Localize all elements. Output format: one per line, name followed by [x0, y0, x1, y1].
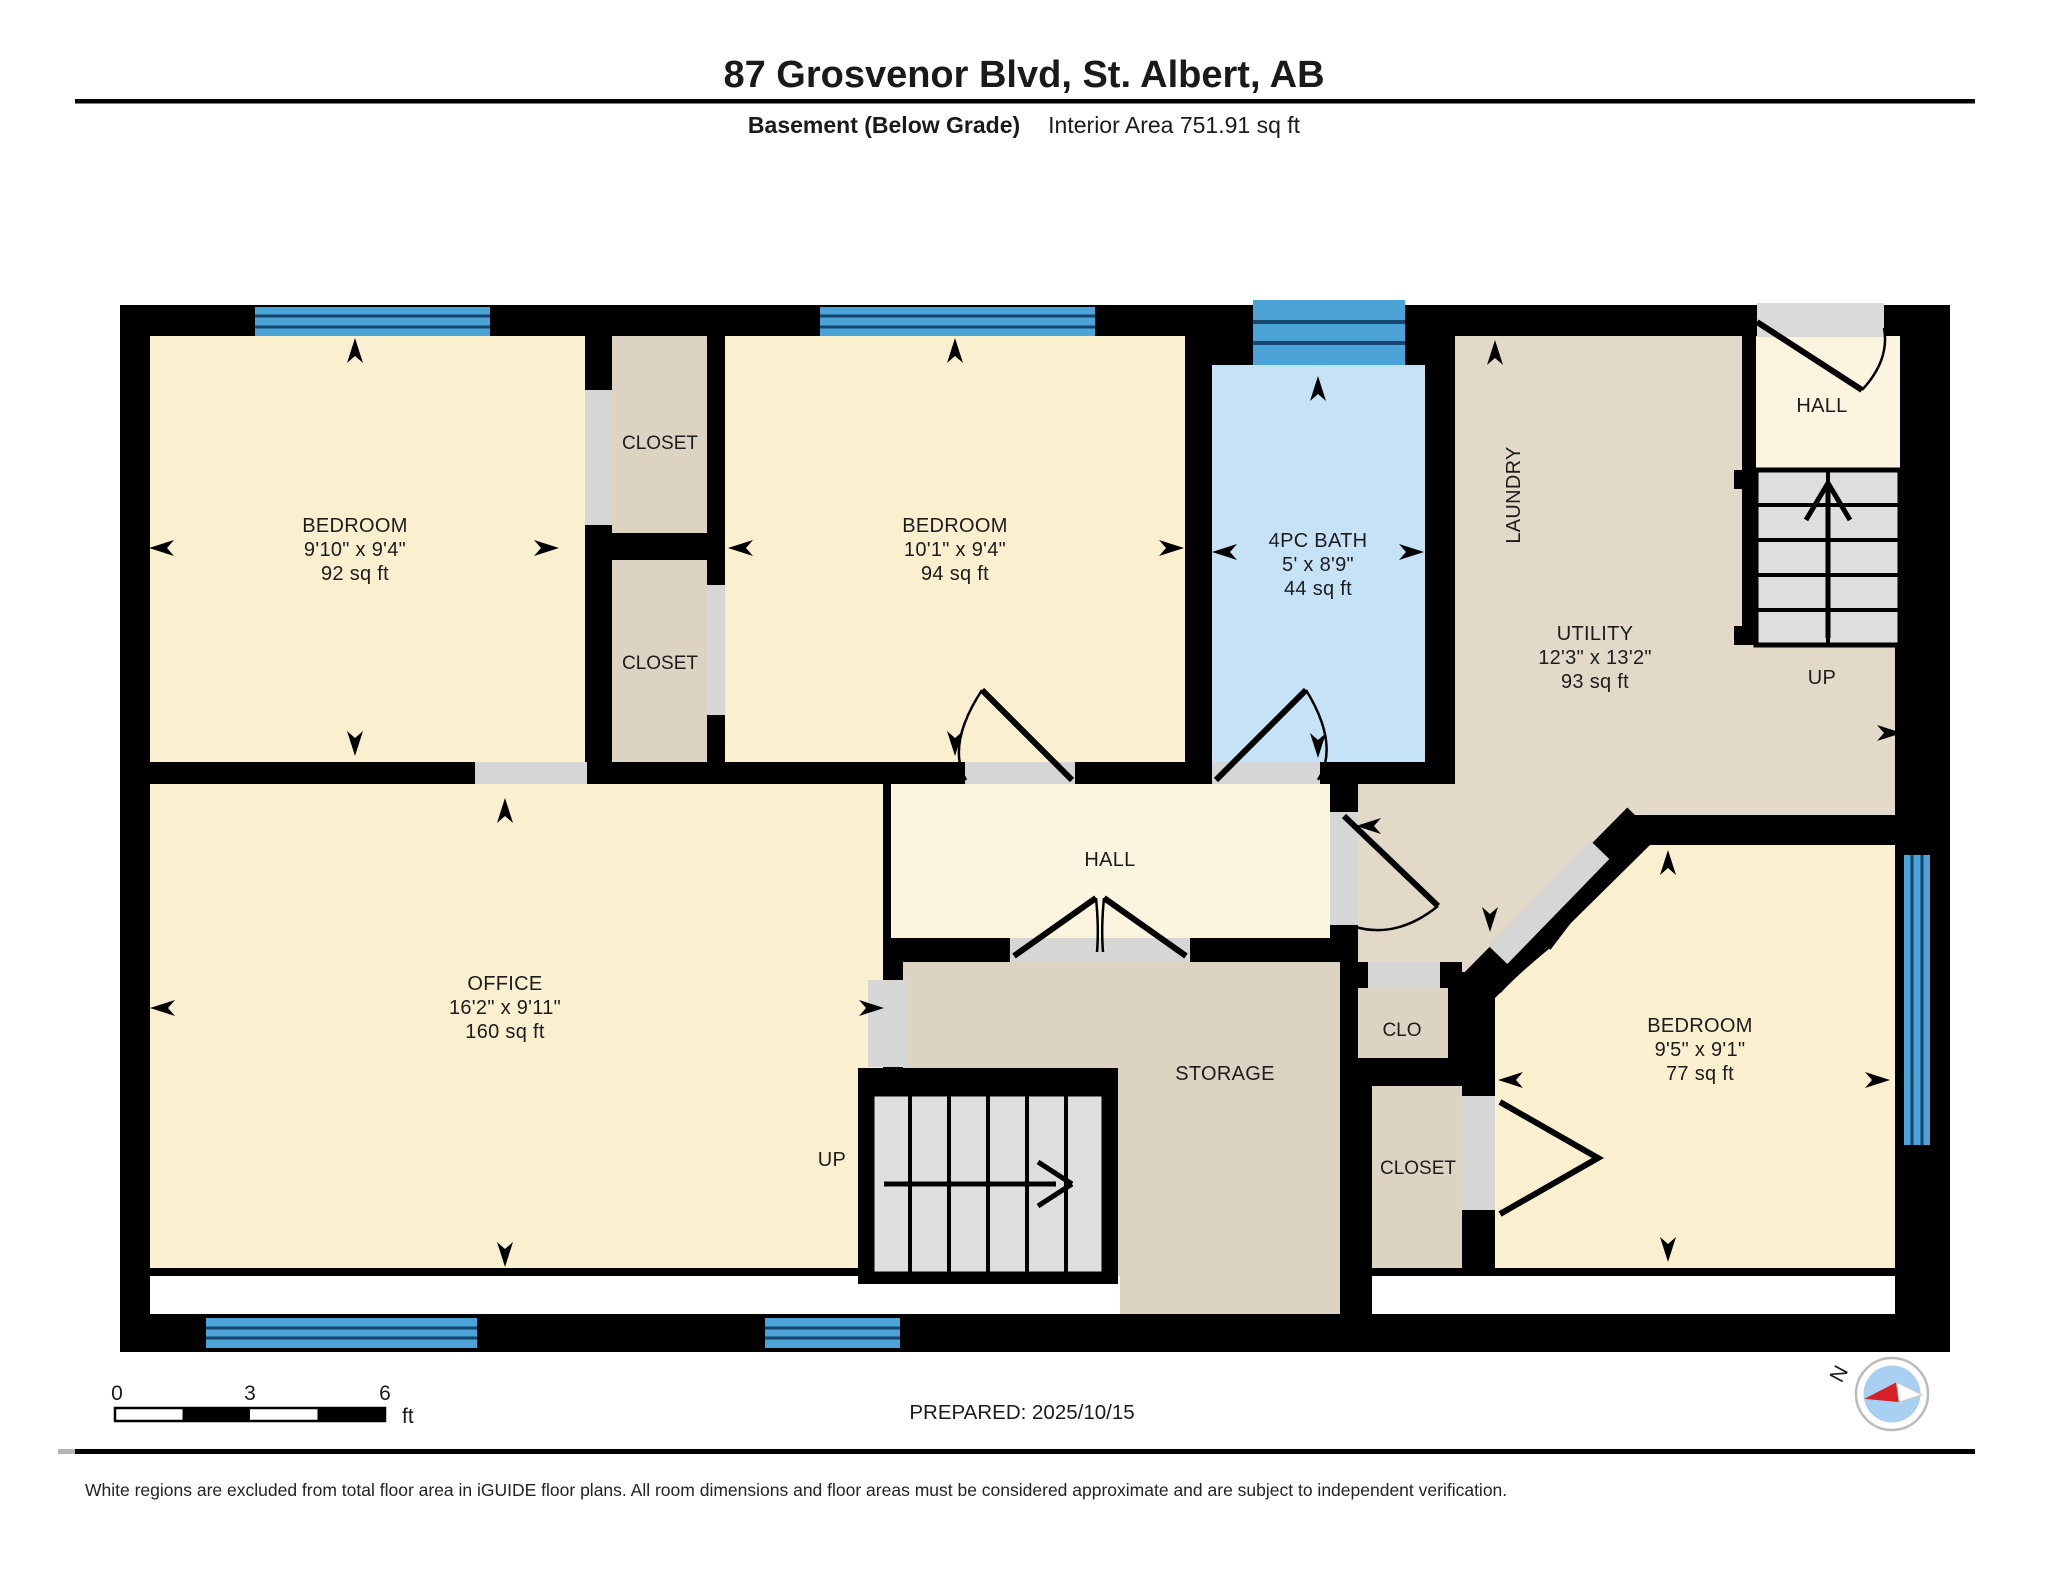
stairs-lower	[858, 1068, 1118, 1284]
bath-name: 4PC BATH	[1269, 530, 1368, 552]
window-bedroom3	[1904, 855, 1930, 1145]
bedroom3-area: 77 sq ft	[1666, 1063, 1734, 1085]
bedroom1-area: 92 sq ft	[321, 563, 389, 585]
scale-tick-3: 3	[244, 1382, 256, 1405]
door-gap-closet2	[707, 585, 725, 715]
bath-dims: 5' x 8'9"	[1282, 554, 1354, 576]
disclaimer-text: White regions are excluded from total fl…	[85, 1480, 1507, 1500]
door-gap-closet3	[1462, 1096, 1495, 1210]
closet3-name: CLOSET	[1380, 1158, 1456, 1179]
door-gap-clo	[1368, 962, 1440, 988]
office-area: 160 sq ft	[465, 1021, 545, 1043]
compass-north-label: N	[1826, 1362, 1853, 1386]
window-bedroom2	[820, 307, 1095, 336]
compass-icon: N	[1826, 1358, 1928, 1430]
window-bedroom1	[255, 307, 490, 336]
door-gap-closet1	[585, 390, 612, 525]
footer-rule-stub	[58, 1449, 75, 1454]
floor-subtitle: Basement (Below Grade)Interior Area 751.…	[748, 112, 1301, 138]
stairs-upper	[1734, 470, 1900, 645]
page-title: 87 Grosvenor Blvd, St. Albert, AB	[723, 54, 1324, 96]
hall-name: HALL	[1084, 849, 1135, 871]
bath-area: 44 sq ft	[1284, 578, 1352, 600]
laundry-name: LAUNDRY	[1503, 446, 1525, 543]
up-lower-label: UP	[818, 1149, 846, 1171]
office-name: OFFICE	[467, 973, 542, 995]
footer-rule	[75, 1449, 1975, 1454]
bedroom3-dims: 9'5" x 9'1"	[1655, 1039, 1746, 1061]
utility-area: 93 sq ft	[1561, 671, 1629, 693]
window-office-right	[765, 1318, 900, 1348]
storage-name: STORAGE	[1175, 1063, 1275, 1085]
interior-area-label: Interior Area 751.91 sq ft	[1048, 112, 1300, 138]
scale-bar: 0 3 6 ft	[111, 1382, 414, 1428]
prepared-date: PREPARED: 2025/10/15	[909, 1401, 1134, 1424]
bedroom2-name: BEDROOM	[902, 515, 1007, 537]
office-dims: 16'2" x 9'11"	[449, 997, 561, 1019]
bedroom1-name: BEDROOM	[302, 515, 407, 537]
floorplan-canvas: 87 Grosvenor Blvd, St. Albert, AB Baseme…	[0, 0, 2048, 1583]
window-bath	[1253, 300, 1405, 365]
scale-unit: ft	[402, 1405, 414, 1428]
bedroom3-name: BEDROOM	[1647, 1015, 1752, 1037]
bedroom2-area: 94 sq ft	[921, 563, 989, 585]
floor-label: Basement (Below Grade)	[748, 112, 1020, 138]
door-gap-office	[868, 980, 908, 1067]
header-rule	[75, 99, 1975, 104]
excluded-strip-right	[1372, 1276, 1895, 1314]
window-office-left	[206, 1318, 477, 1348]
utility-name: UTILITY	[1557, 623, 1634, 645]
scale-tick-6: 6	[379, 1382, 391, 1405]
floorplan-page: 87 Grosvenor Blvd, St. Albert, AB Baseme…	[0, 0, 2048, 1583]
door-gap-bedroom1	[475, 762, 587, 784]
bedroom1-dims: 9'10" x 9'4"	[304, 539, 406, 561]
closet1-name: CLOSET	[622, 433, 698, 454]
bedroom2-dims: 10'1" x 9'4"	[904, 539, 1006, 561]
utility-dims: 12'3" x 13'2"	[1538, 647, 1652, 669]
up-upper-label: UP	[1808, 667, 1836, 689]
clo-name: CLO	[1382, 1020, 1421, 1041]
hall-upper-name: HALL	[1796, 395, 1847, 417]
scale-tick-0: 0	[111, 1382, 123, 1405]
closet2-name: CLOSET	[622, 653, 698, 674]
